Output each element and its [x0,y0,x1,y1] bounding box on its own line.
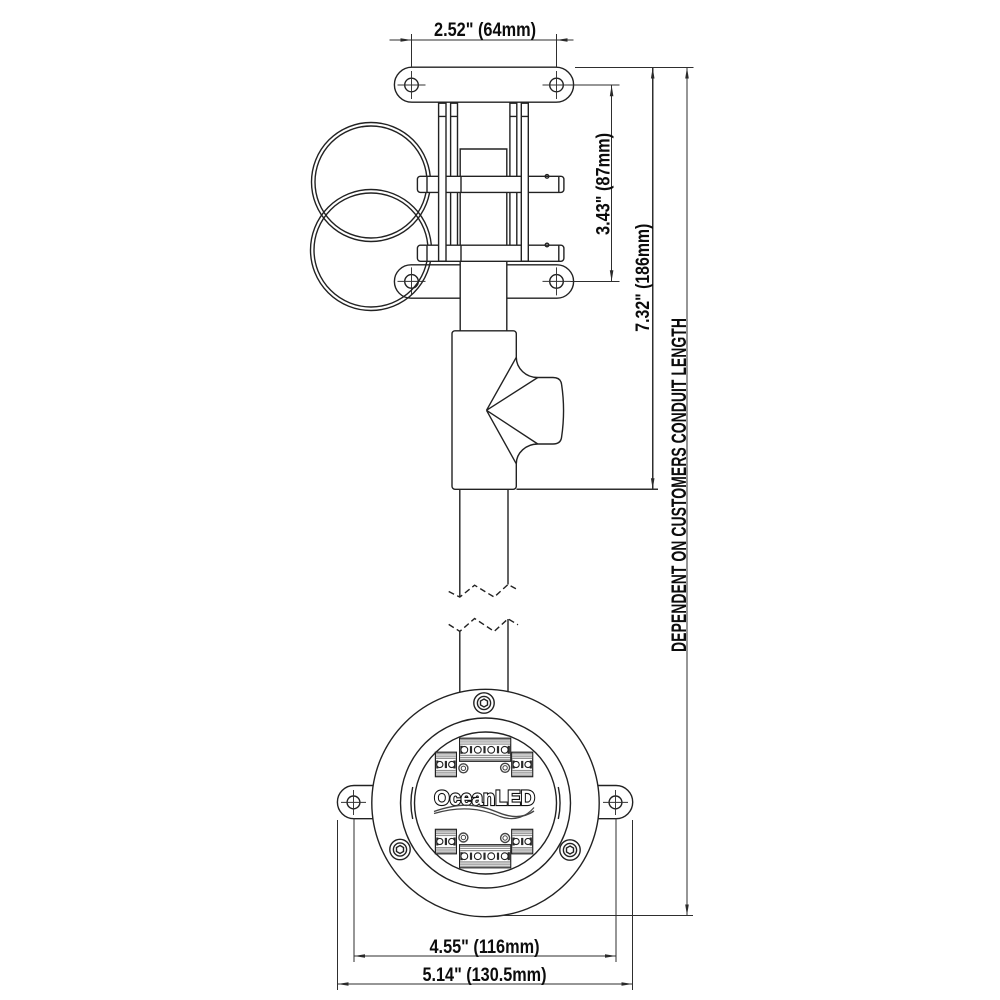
svg-text:3.43" (87mm): 3.43" (87mm) [594,133,615,235]
svg-text:4.55" (116mm): 4.55" (116mm) [430,937,540,958]
svg-text:5.14" (130.5mm): 5.14" (130.5mm) [423,965,547,986]
svg-text:2.52" (64mm): 2.52" (64mm) [434,20,536,41]
svg-text:7.32" (186mm): 7.32" (186mm) [633,224,654,332]
svg-text:DEPENDENT ON CUSTOMERS CONDUIT: DEPENDENT ON CUSTOMERS CONDUIT LENGTH [668,318,691,652]
